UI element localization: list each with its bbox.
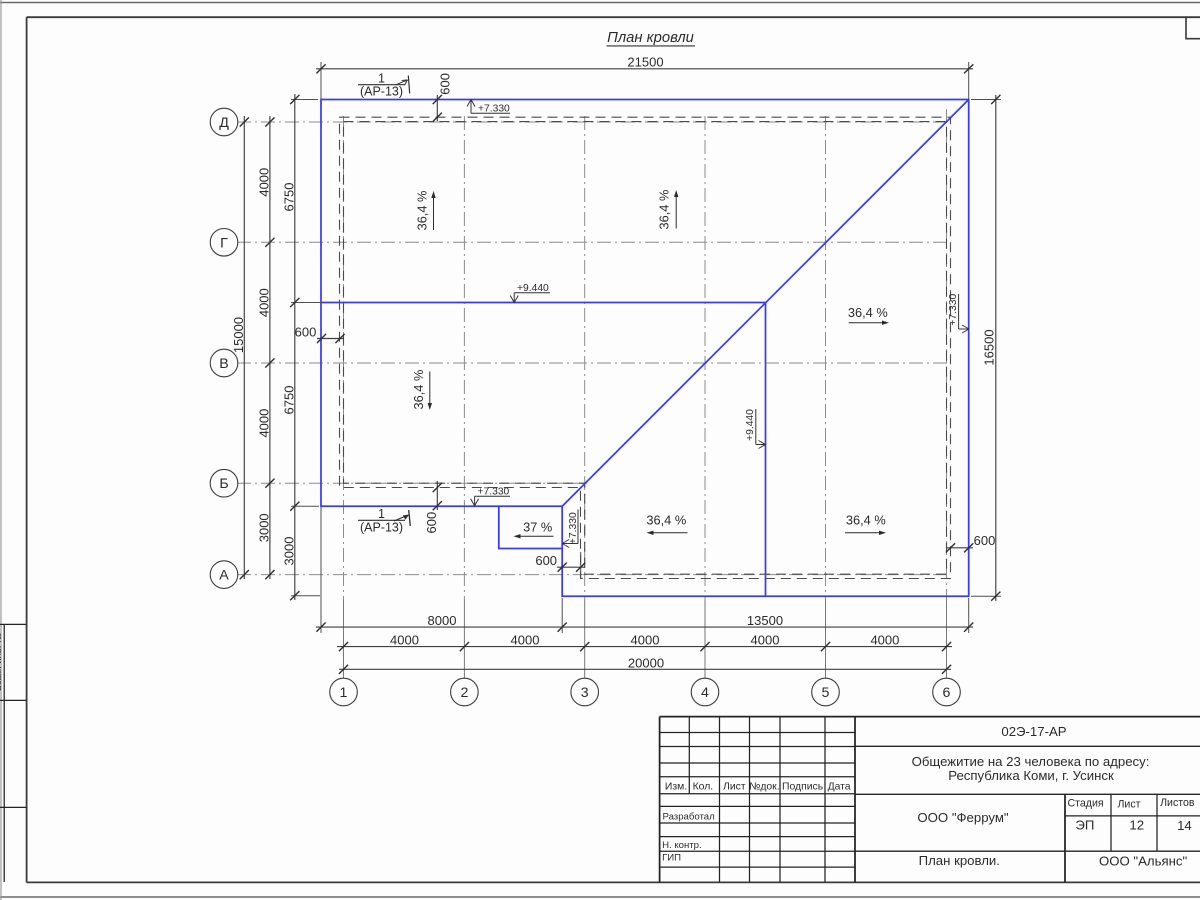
svg-text:36,4 %: 36,4 % <box>411 370 426 410</box>
svg-text:36,4 %: 36,4 % <box>848 305 888 320</box>
svg-text:21500: 21500 <box>627 54 663 69</box>
svg-text:+9.440: +9.440 <box>517 283 549 294</box>
svg-text:В: В <box>219 356 228 372</box>
svg-text:600: 600 <box>437 73 452 95</box>
svg-text:4000: 4000 <box>257 288 272 317</box>
svg-text:Дата: Дата <box>828 782 851 793</box>
svg-text:3000: 3000 <box>282 537 297 566</box>
svg-text:6750: 6750 <box>282 183 297 212</box>
svg-text:1: 1 <box>378 72 385 86</box>
svg-text:+7.330: +7.330 <box>478 103 510 114</box>
svg-text:+7.330: +7.330 <box>478 486 510 497</box>
svg-text:Б: Б <box>219 476 228 492</box>
svg-text:15000: 15000 <box>231 317 246 353</box>
svg-text:Листов: Листов <box>1160 797 1195 809</box>
svg-text:4000: 4000 <box>511 633 540 648</box>
svg-text:+9.440: +9.440 <box>745 409 756 441</box>
svg-text:20000: 20000 <box>628 656 664 671</box>
svg-text:+7.330: +7.330 <box>568 512 579 544</box>
svg-text:Кол.: Кол. <box>693 782 714 793</box>
svg-text:600: 600 <box>424 512 439 534</box>
svg-text:План кровли.: План кровли. <box>919 853 1000 868</box>
svg-text:600: 600 <box>295 325 317 340</box>
svg-text:600: 600 <box>535 553 557 568</box>
svg-text:14: 14 <box>1177 818 1192 833</box>
svg-text:8000: 8000 <box>428 613 457 628</box>
svg-text:02Э-17-АР: 02Э-17-АР <box>1001 724 1066 739</box>
svg-text:3: 3 <box>581 685 589 701</box>
svg-text:36,4 %: 36,4 % <box>846 513 886 528</box>
svg-text:4000: 4000 <box>870 633 899 648</box>
svg-text:ЭП: ЭП <box>1075 817 1094 832</box>
svg-text:№док.: №док. <box>749 782 779 793</box>
svg-text:37 %: 37 % <box>523 519 552 534</box>
svg-text:Н. контр.: Н. контр. <box>662 840 702 851</box>
svg-text:4: 4 <box>701 685 709 701</box>
svg-text:(АР-13): (АР-13) <box>360 85 403 99</box>
svg-text:4000: 4000 <box>390 633 419 648</box>
svg-text:Общежитие на 23 человека по ад: Общежитие на 23 человека по адресу: <box>912 754 1150 769</box>
svg-text:2: 2 <box>460 685 468 701</box>
svg-text:Взам. инв. №: Взам. инв. № <box>0 633 3 691</box>
svg-text:16500: 16500 <box>981 329 996 365</box>
svg-text:Стадия: Стадия <box>1068 798 1104 810</box>
svg-text:ООО "Альянс": ООО "Альянс" <box>1099 853 1187 868</box>
svg-text:Республика Коми, г. Усинск: Республика Коми, г. Усинск <box>948 768 1114 783</box>
svg-text:ГИП: ГИП <box>662 852 681 863</box>
svg-text:13500: 13500 <box>747 613 783 628</box>
svg-text:4000: 4000 <box>751 633 780 648</box>
svg-text:600: 600 <box>974 533 996 548</box>
svg-text:Лист: Лист <box>1117 799 1140 811</box>
svg-text:Г: Г <box>220 235 228 251</box>
svg-text:36,4 %: 36,4 % <box>646 513 686 528</box>
svg-text:+7.330: +7.330 <box>948 294 959 326</box>
svg-text:Лист: Лист <box>723 782 746 793</box>
svg-text:36,4 %: 36,4 % <box>415 191 430 231</box>
svg-text:36,4 %: 36,4 % <box>656 190 671 230</box>
svg-text:Разработал: Разработал <box>663 812 715 823</box>
svg-text:12: 12 <box>1129 818 1144 833</box>
svg-text:План кровли: План кровли <box>607 30 694 46</box>
svg-text:3000: 3000 <box>257 513 272 542</box>
svg-text:4000: 4000 <box>257 409 272 438</box>
svg-text:Подпись: Подпись <box>782 782 823 793</box>
svg-text:4000: 4000 <box>257 168 272 197</box>
svg-text:1: 1 <box>340 685 348 701</box>
svg-text:Д: Д <box>219 115 229 131</box>
svg-text:ООО "Феррум": ООО "Феррум" <box>917 810 1009 825</box>
svg-text:1: 1 <box>378 507 385 521</box>
svg-text:5: 5 <box>822 685 830 701</box>
svg-text:6: 6 <box>943 685 951 701</box>
svg-text:А: А <box>219 568 229 584</box>
svg-text:Изм.: Изм. <box>665 782 687 793</box>
svg-text:6750: 6750 <box>282 386 297 415</box>
svg-text:(АР-13): (АР-13) <box>360 520 403 534</box>
svg-text:4000: 4000 <box>631 633 660 648</box>
